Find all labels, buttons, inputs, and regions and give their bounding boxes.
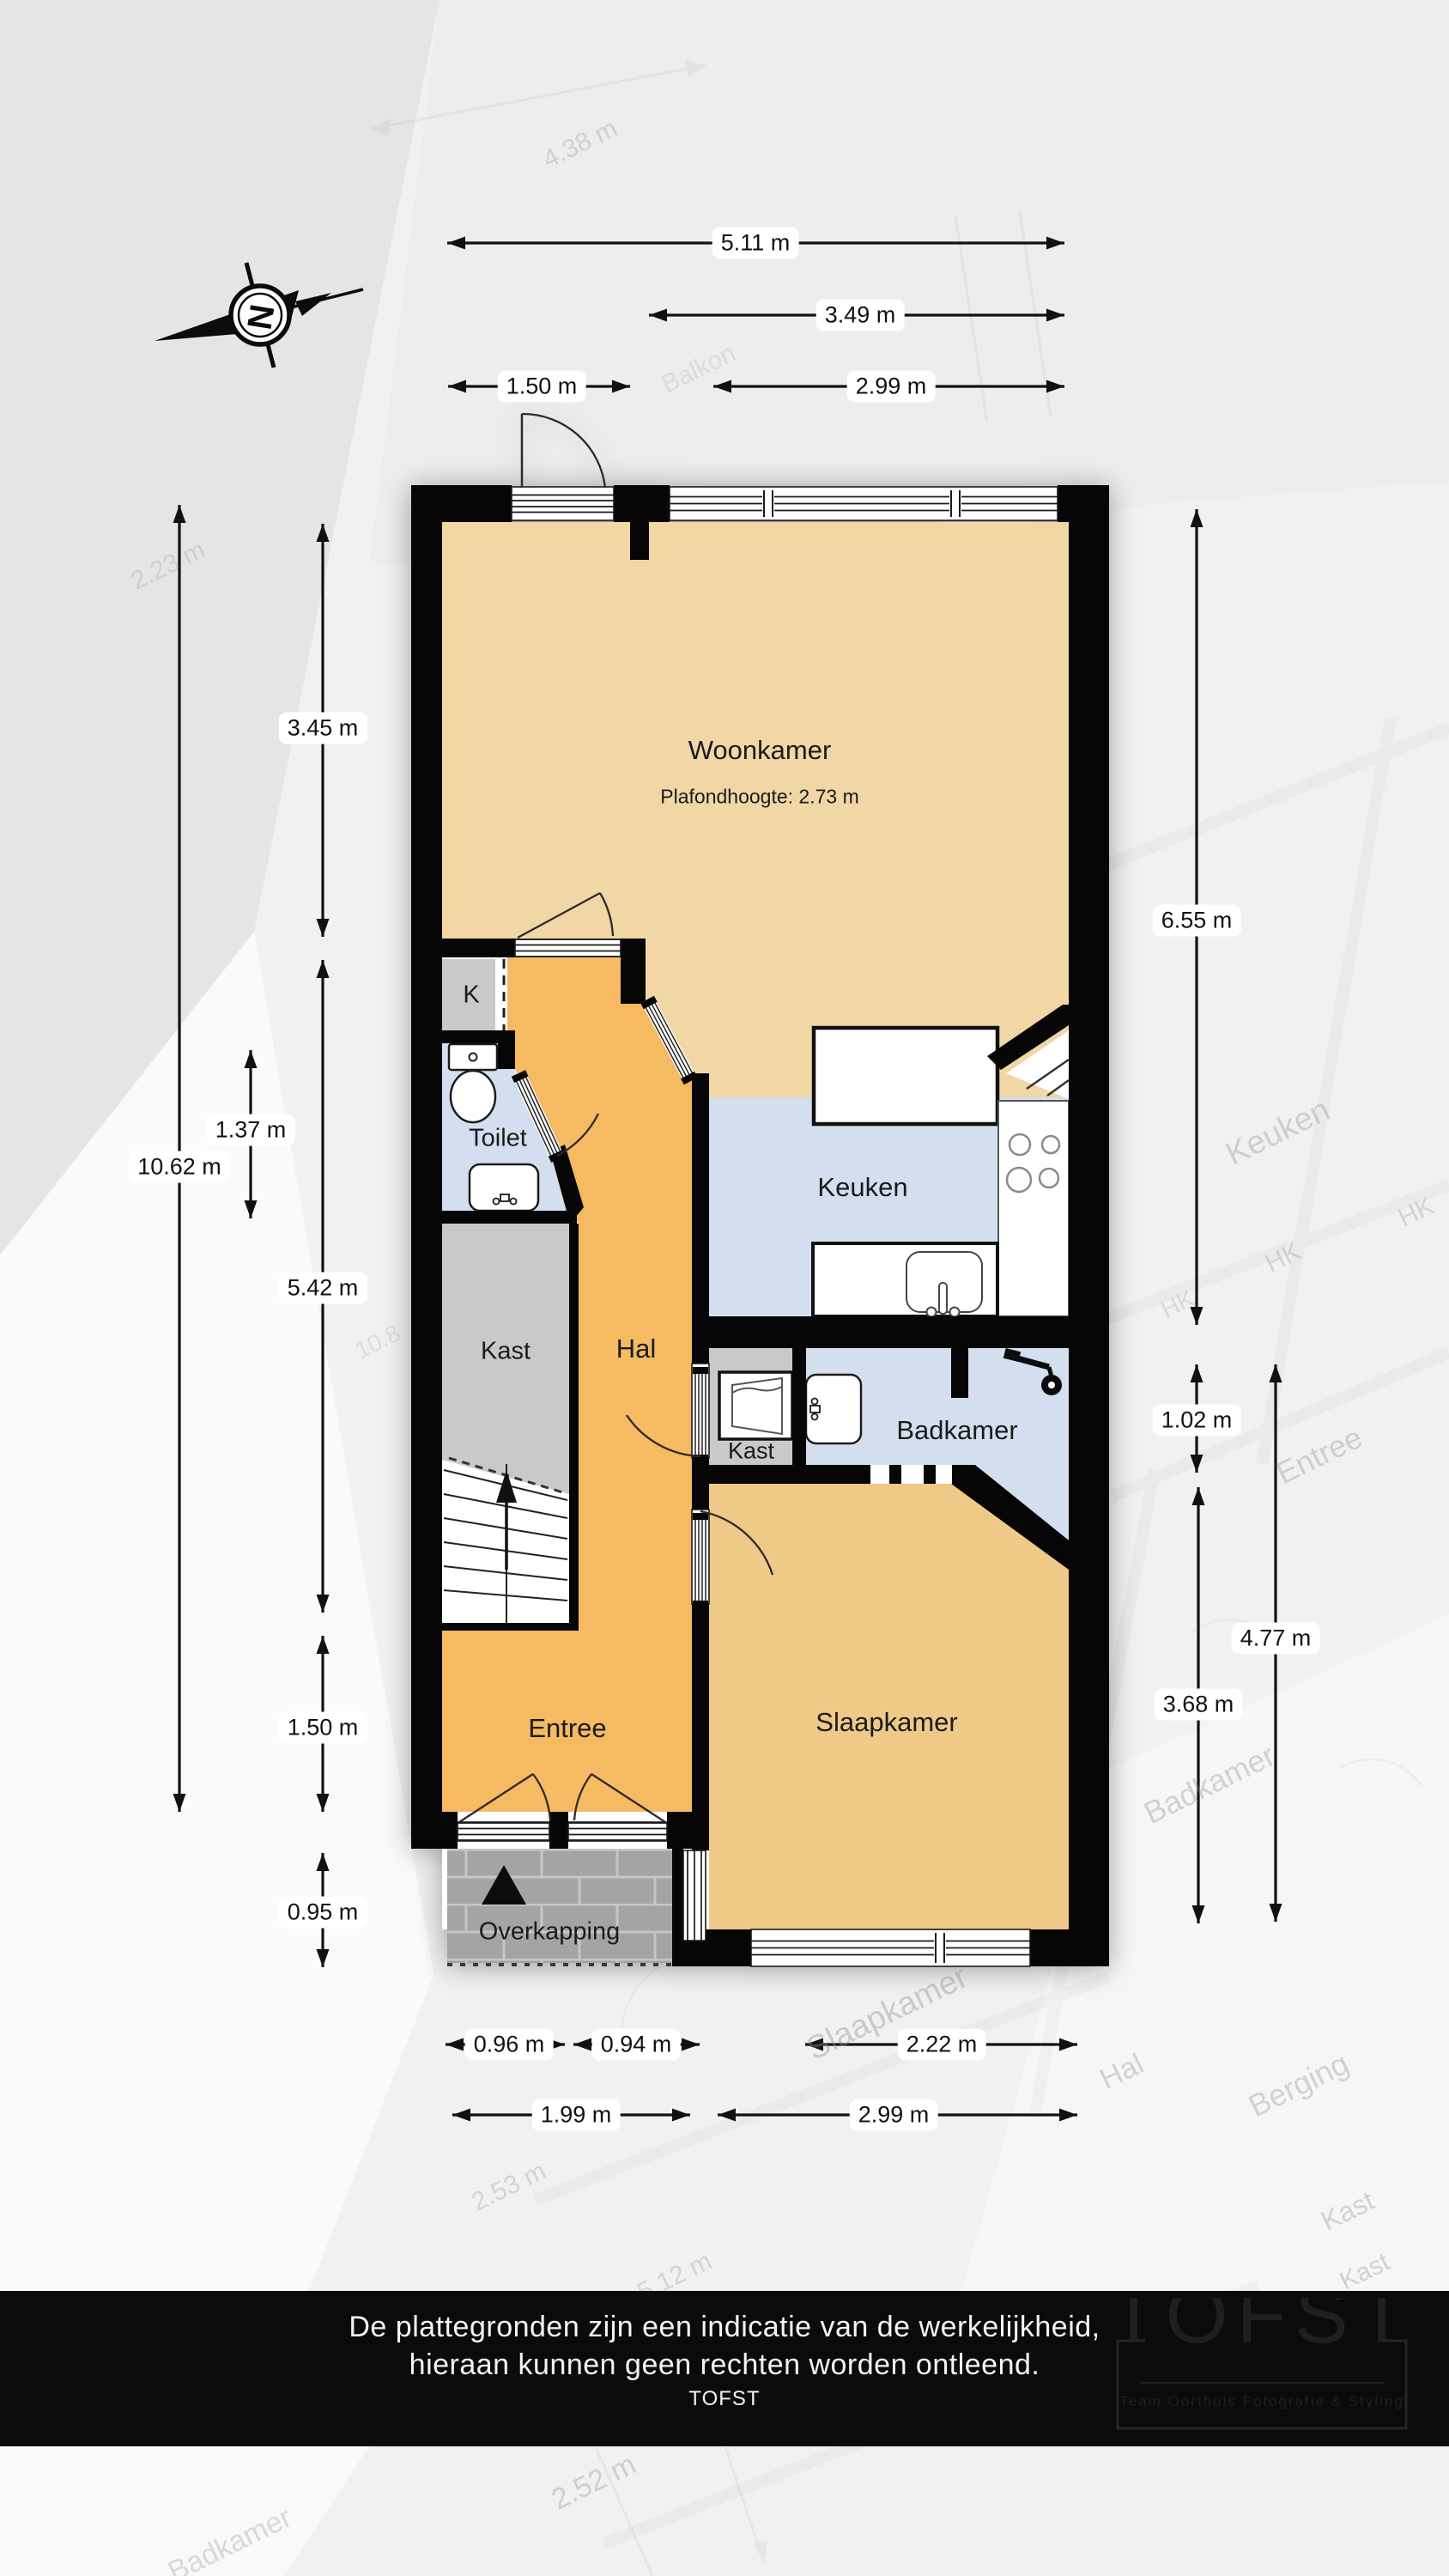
- dimension-label: 10.62 m: [129, 1151, 230, 1183]
- dimension-label: 1.50 m: [498, 371, 586, 403]
- door-sill-garden: [512, 487, 614, 520]
- room-label-slaapkamer: Slaapkamer: [815, 1707, 957, 1738]
- dimension-label: 0.96 m: [465, 2029, 554, 2061]
- toilet-icon: [451, 1071, 495, 1122]
- room-label-toilet: Toilet: [469, 1125, 527, 1153]
- logo-subtitle: Team Oorthuis Fotografie & Styling: [1119, 2393, 1404, 2409]
- door-sill-woonkamer-hal: [515, 939, 621, 957]
- window-side: [683, 1850, 706, 1941]
- dimension-label: 3.49 m: [816, 300, 905, 331]
- room-label-woonkamer: Woonkamer: [688, 735, 832, 766]
- kitchen-sink-icon: [906, 1252, 982, 1317]
- room-label-meterkast: K: [463, 981, 479, 1010]
- ceiling-height-note: Plafondhoogte: 2.73 m: [660, 786, 858, 809]
- kitchen-island: [814, 1028, 997, 1124]
- dimension-label: 1.99 m: [532, 2099, 621, 2131]
- door-sill-entree-left: [458, 1822, 549, 1841]
- logo-title: TOFST: [1114, 2298, 1413, 2360]
- window-slaapkamer: [751, 1929, 1030, 1966]
- wardrobe-icon: [719, 1372, 792, 1439]
- cistern-icon: [449, 1044, 497, 1070]
- kitchen-counter-right: [998, 1101, 1069, 1316]
- tofst-logo: TOFST Team Oorthuis Fotografie & Styling: [1114, 2298, 1413, 2435]
- dimension-label: 2.99 m: [847, 371, 936, 403]
- room-label-hal: Hal: [616, 1334, 657, 1364]
- dimension-label: 6.55 m: [1153, 905, 1241, 937]
- dimension-label: 1.37 m: [207, 1115, 295, 1146]
- door-leaf-slaapkamer: [693, 1513, 708, 1607]
- door-sill-entree-right: [568, 1822, 667, 1841]
- bathroom-sink-icon: [806, 1375, 861, 1443]
- floorplan-canvas: N: [0, 0, 1449, 2576]
- dimension-label: 3.45 m: [279, 713, 367, 744]
- floor-plan: [411, 414, 1109, 1966]
- dimension-label: 4.77 m: [1232, 1623, 1320, 1655]
- window-top: [670, 487, 1058, 520]
- room-label-entree: Entree: [528, 1713, 606, 1744]
- room-label-keuken: Keuken: [817, 1172, 907, 1203]
- door-leaf-badkamer: [693, 1367, 708, 1461]
- room-label-kast-klein: Kast: [728, 1438, 774, 1465]
- dimension-label: 2.99 m: [850, 2099, 938, 2131]
- badkamer-dashed-opening: [870, 1465, 952, 1484]
- dimension-label: 1.50 m: [279, 1712, 367, 1744]
- dimension-label: 3.68 m: [1155, 1689, 1243, 1721]
- dimension-label: 5.42 m: [279, 1273, 367, 1304]
- room-label-overkapping: Overkapping: [479, 1918, 620, 1947]
- toilet-sink-icon: [470, 1164, 538, 1211]
- room-label-kast: Kast: [481, 1338, 530, 1366]
- overkapping-paving: [447, 1849, 672, 1965]
- dimension-label: 0.95 m: [279, 1897, 367, 1929]
- room-label-badkamer: Badkamer: [896, 1415, 1017, 1446]
- dimension-label: 1.02 m: [1153, 1405, 1241, 1437]
- dimension-label: 2.22 m: [898, 2029, 986, 2061]
- dimension-label: 5.11 m: [712, 228, 799, 259]
- floorplan-page: N Woonkamer Plafondhoogte: 2.73 m Keuken…: [0, 0, 1449, 2576]
- dimension-label: 0.94 m: [592, 2029, 681, 2061]
